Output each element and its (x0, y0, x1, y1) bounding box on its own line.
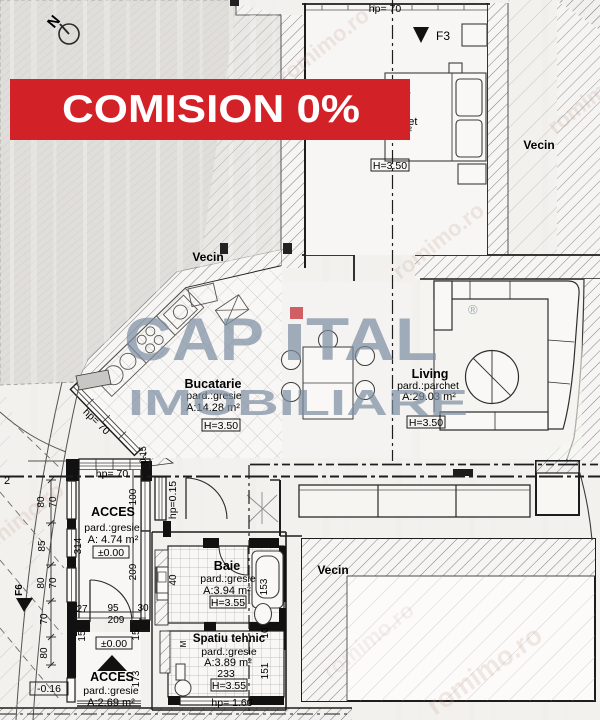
svg-text:CAP: CAP (124, 306, 264, 373)
svg-text:pard.:gresie: pard.:gresie (200, 573, 256, 585)
svg-text:10: 10 (260, 627, 271, 639)
svg-text:F3: F3 (436, 29, 450, 43)
svg-text:TAL: TAL (306, 306, 438, 373)
svg-text:233: 233 (217, 668, 235, 680)
svg-text:-0.16: -0.16 (37, 683, 61, 695)
svg-text:209: 209 (128, 563, 139, 580)
svg-text:F6: F6 (14, 584, 25, 596)
svg-text:hp= 70: hp= 70 (96, 468, 129, 480)
svg-text:hp= 1.60: hp= 1.60 (211, 697, 252, 709)
svg-text:40: 40 (168, 574, 179, 586)
svg-text:Spatiu tehnic: Spatiu tehnic (193, 633, 266, 645)
svg-text:Vecin: Vecin (192, 250, 223, 264)
svg-text:Vecin: Vecin (317, 563, 348, 577)
svg-text:Vecin: Vecin (523, 138, 554, 152)
svg-text:27: 27 (76, 604, 88, 615)
svg-text:95: 95 (107, 603, 119, 614)
svg-text:30: 30 (137, 603, 149, 614)
svg-text:151: 151 (260, 662, 271, 679)
svg-text:15: 15 (77, 630, 88, 642)
svg-text:±0.00: ±0.00 (101, 638, 127, 650)
svg-text:®: ® (468, 302, 478, 317)
svg-text:A:3.94 m²: A:3.94 m² (203, 585, 251, 597)
svg-text:M: M (179, 640, 188, 647)
svg-text:314: 314 (73, 537, 84, 554)
svg-text:±0.00: ±0.00 (98, 547, 124, 559)
svg-text:A: 4.74 m²: A: 4.74 m² (88, 534, 139, 546)
svg-text:70: 70 (48, 577, 59, 589)
svg-text:hp= 70: hp= 70 (369, 3, 402, 15)
svg-text:80: 80 (39, 647, 50, 659)
svg-text:hp=0.15: hp=0.15 (167, 481, 179, 519)
svg-text:80: 80 (36, 577, 47, 589)
svg-text:pard.:gresie: pard.:gresie (84, 522, 140, 534)
svg-text:ACCES: ACCES (90, 670, 134, 684)
svg-text:IMOBILIARE: IMOBILIARE (128, 382, 468, 423)
svg-text:153: 153 (259, 578, 270, 595)
svg-text:H=3.55: H=3.55 (212, 680, 246, 692)
svg-text:H=3.55: H=3.55 (211, 597, 245, 609)
svg-text:15: 15 (131, 629, 142, 641)
svg-text:70: 70 (39, 613, 50, 625)
svg-text:COMISION 0%: COMISION 0% (62, 88, 360, 131)
svg-text:0.15: 0.15 (138, 446, 148, 464)
svg-text:2: 2 (4, 475, 10, 487)
svg-text:A:2.69 m²: A:2.69 m² (87, 697, 135, 709)
svg-text:209: 209 (108, 615, 125, 626)
svg-text:100: 100 (128, 488, 139, 505)
svg-text:173: 173 (131, 670, 142, 687)
svg-text:ACCES: ACCES (91, 505, 135, 519)
svg-text:85: 85 (37, 540, 48, 552)
svg-text:Baie: Baie (214, 559, 240, 573)
svg-text:H=3.50: H=3.50 (373, 160, 407, 172)
